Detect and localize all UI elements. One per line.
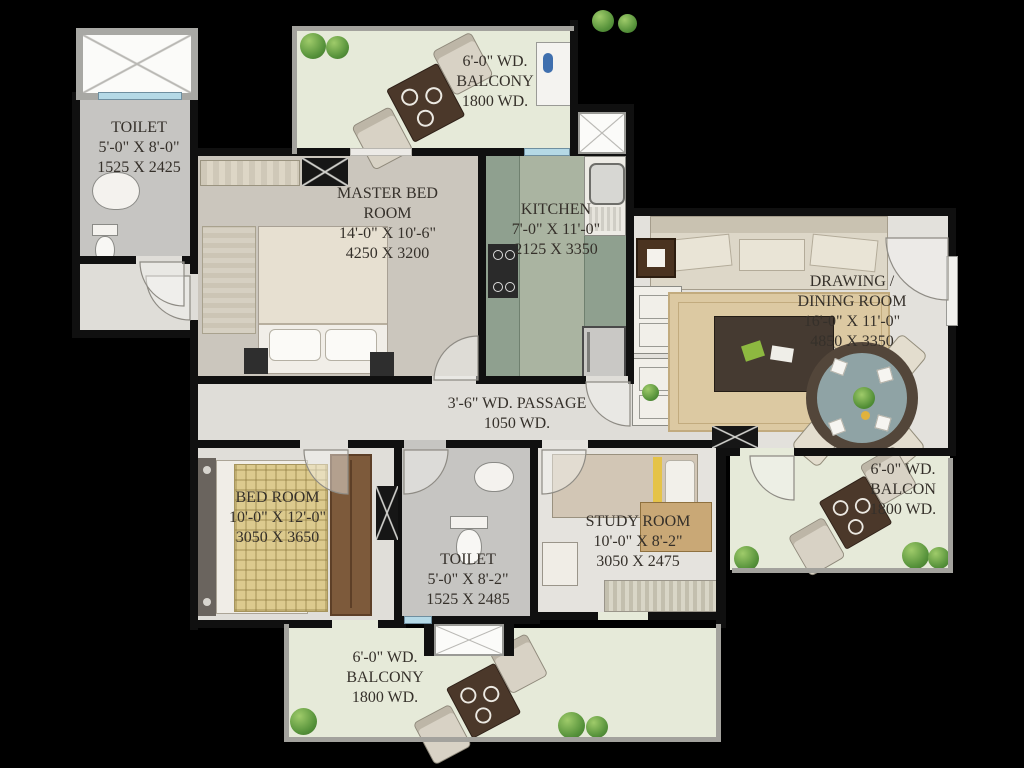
balcony-width-ft: 6'-0" WD. (850, 460, 956, 480)
balcony-bottom-label: 6'-0" WD. BALCONY 1800 WD. (318, 648, 452, 708)
room-name: BED ROOM (210, 488, 345, 508)
balcony-width-mm: 1800 WD. (318, 688, 452, 708)
room-name: STUDY ROOM (556, 512, 720, 532)
balcony-width-ft: 6'-0" WD. (318, 648, 452, 668)
room-size-mm: 3050 X 2475 (556, 552, 720, 572)
balcony-width-ft: 6'-0" WD. (428, 52, 562, 72)
room-size-ft: 7'-0" X 11'-0" (486, 220, 626, 240)
passage-name: 3'-6" WD. PASSAGE (412, 394, 622, 414)
door-arc (404, 450, 448, 494)
passage-width-mm: 1050 WD. (412, 414, 622, 434)
room-size-ft: 5'-0" X 8'-2" (402, 570, 534, 590)
drawing-dining-label: DRAWING / DINING ROOM 16'-0" X 11'-0" 48… (782, 272, 922, 352)
toilet-top-label: TOILET 5'-0" X 8'-0" 1525 X 2425 (84, 118, 194, 178)
room-name: BALCONY (428, 72, 562, 92)
room-size-ft: 16'-0" X 11'-0" (782, 312, 922, 332)
master-bedroom-label: MASTER BED ROOM 14'-0" X 10'-6" 4250 X 3… (320, 184, 455, 264)
study-room-label: STUDY ROOM 10'-0" X 8'-2" 3050 X 2475 (556, 512, 720, 572)
kitchen-label: KITCHEN 7'-0" X 11'-0" 2125 X 3350 (486, 200, 626, 260)
room-size-mm: 3050 X 3650 (210, 528, 345, 548)
floor-plan: TOILET 5'-0" X 8'-0" 1525 X 2425 6'-0" W… (0, 0, 1024, 768)
door-arc (434, 336, 478, 380)
door-arc (140, 262, 184, 306)
room-name: TOILET (84, 118, 194, 138)
room-size-ft: 5'-0" X 8'-0" (84, 138, 194, 158)
room-size-ft: 10'-0" X 8'-2" (556, 532, 720, 552)
room-name: TOILET (402, 550, 534, 570)
door-arc (750, 456, 794, 500)
room-name: DRAWING / DINING ROOM (782, 272, 922, 312)
room-size-mm: 4250 X 3200 (320, 244, 455, 264)
room-name: BALCONY (318, 668, 452, 688)
balcony-width-mm: 1800 WD. (850, 500, 956, 520)
balcony-right-label: 6'-0" WD. BALCON 1800 WD. (850, 460, 956, 520)
balcony-width-mm: 1800 WD. (428, 92, 562, 112)
door-swing-arcs (0, 0, 1024, 768)
room-name: KITCHEN (486, 200, 626, 220)
balcony-top-label: 6'-0" WD. BALCONY 1800 WD. (428, 52, 562, 112)
room-name: BALCON (850, 480, 956, 500)
room-size-ft: 10'-0" X 12'-0" (210, 508, 345, 528)
room-name: MASTER BED ROOM (320, 184, 455, 224)
passage-label: 3'-6" WD. PASSAGE 1050 WD. (412, 394, 622, 434)
room-size-mm: 1525 X 2425 (84, 158, 194, 178)
room-size-mm: 4850 X 3350 (782, 332, 922, 352)
door-arc (542, 450, 586, 494)
room-size-mm: 1525 X 2485 (402, 590, 534, 610)
toilet-bottom-label: TOILET 5'-0" X 8'-2" 1525 X 2485 (402, 550, 534, 610)
bedroom-label: BED ROOM 10'-0" X 12'-0" 3050 X 3650 (210, 488, 345, 548)
room-size-mm: 2125 X 3350 (486, 240, 626, 260)
room-size-ft: 14'-0" X 10'-6" (320, 224, 455, 244)
